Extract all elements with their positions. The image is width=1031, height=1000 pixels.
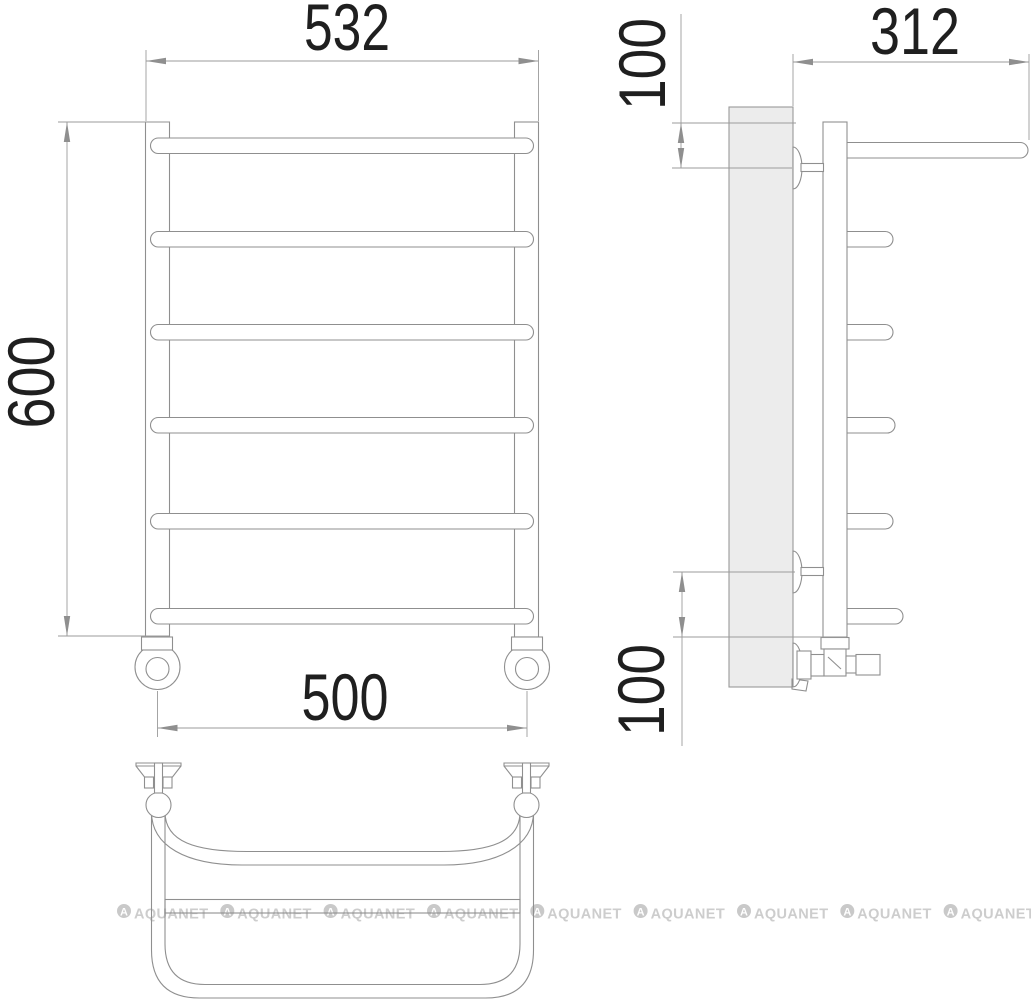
arrowhead [158,725,178,731]
bowed-rung-inner-curve [165,812,520,852]
shelf-outline-outer [152,805,534,998]
post-section-right [514,793,539,818]
dim-label-top-offset: 100 [605,18,679,110]
shelf-bar-side [824,143,1029,159]
watermark-logo-letter: A [120,907,128,919]
rung-bar [151,325,534,341]
valve-pipe [811,655,824,677]
arrowhead [678,148,684,168]
watermark: A AQUANET [944,904,1031,923]
arrowhead [679,617,685,637]
bracket-nut [513,777,522,788]
arrowhead [507,725,527,731]
rung-bar [151,609,534,625]
bracket-top-left [136,763,181,793]
watermark: A AQUANET [737,904,829,923]
watermark-label: AQUANET [134,907,209,923]
rung-bar [151,418,534,434]
bracket-nut [163,777,172,788]
watermark-label: AQUANET [444,907,519,923]
watermark: A AQUANET [634,904,726,923]
towel-rail-drawing: A AQUANET A AQUANET A AQUANET A AQUANET … [0,0,1031,1000]
watermark-logo-letter: A [843,907,851,919]
watermark: A AQUANET [840,904,932,923]
dim-depth: 312 [793,0,1029,140]
dim-label-width-bottom: 500 [302,660,389,734]
dim-width-bottom: 500 [158,660,528,737]
dim-label-width-top: 532 [304,0,390,64]
valve-spout [846,656,856,673]
union-nut-left [142,637,173,650]
valve-wall-nut [797,651,811,679]
union-nut-right [512,637,543,650]
shelf-outline-inner [165,805,520,985]
arrowhead [1009,59,1029,65]
bracket-nut [145,777,154,788]
frame-post-side [823,122,847,637]
arrowhead [793,59,813,65]
valve-body [824,649,846,676]
frame-post-right [515,122,539,637]
watermark-label: AQUANET [341,907,416,923]
bracket-top-right [504,763,549,793]
bracket-stem-upper [801,164,824,172]
top-view [136,763,549,998]
watermark: A AQUANET [530,904,622,923]
technical-drawing-page: A AQUANET A AQUANET A AQUANET A AQUANET … [0,0,1031,1000]
arrowhead [64,122,70,142]
bracket-pin [523,763,531,793]
foot-pipe-left [146,658,169,681]
bracket-nut [531,777,540,788]
side-view [729,107,1028,691]
arrowhead [64,616,70,636]
arrowhead [679,572,685,592]
bracket-pin [155,763,163,793]
dim-height: 600 [0,122,170,636]
post-section-left [146,793,171,818]
rung-bar [151,138,534,154]
valve-top-nut [821,638,849,650]
watermark-logo-letter: A [740,907,748,919]
bracket-stem-lower [801,568,824,576]
bowed-rung-outer-curve [152,812,534,865]
watermark-logo-letter: A [947,907,955,919]
dim-label-height: 600 [0,336,68,429]
foot-pipe-right [516,658,539,681]
front-view [135,122,550,690]
arrowhead [519,58,539,64]
rung-bar [151,514,534,530]
watermark-label: AQUANET [547,907,622,923]
watermark-label: AQUANET [857,907,932,923]
watermark-label: AQUANET [237,907,311,923]
wall-plate [729,107,793,687]
dim-width-top: 532 [146,0,539,121]
watermark-logo-letter: A [637,907,645,919]
watermark-label: AQUANET [651,907,726,923]
arrowhead [146,58,166,64]
frame-post-left [146,122,170,637]
rung-bar [151,232,534,248]
watermark-logo-letter: A [533,907,541,919]
arrowhead [678,123,684,143]
dim-label-depth: 312 [870,0,960,68]
dim-label-bottom-offset: 100 [604,644,678,736]
watermark-label: AQUANET [961,907,1031,923]
watermark-label: AQUANET [754,907,829,923]
valve-union-square [856,655,880,676]
